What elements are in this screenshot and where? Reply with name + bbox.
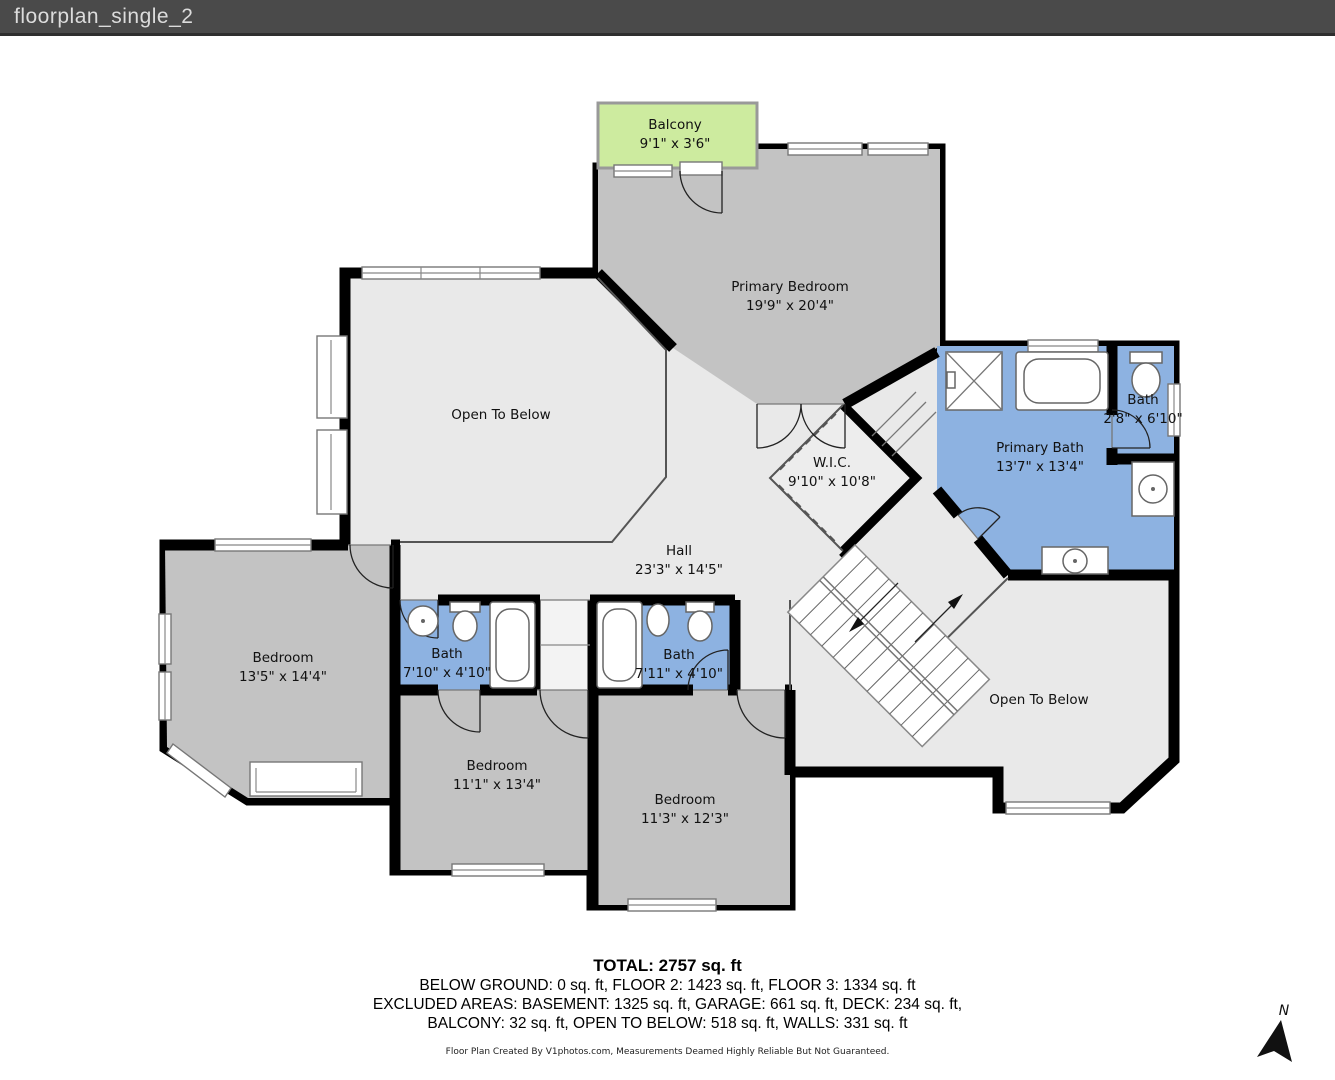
room-name: Bath bbox=[1103, 391, 1182, 410]
summary-total: TOTAL: 2757 sq. ft bbox=[0, 955, 1335, 976]
room-dims: 7'10" x 4'10" bbox=[403, 664, 491, 683]
floor-plan bbox=[0, 0, 1335, 1080]
room-dims: 11'3" x 12'3" bbox=[641, 810, 729, 829]
room-dims: 19'9" x 20'4" bbox=[731, 297, 849, 316]
compass-north-label: N bbox=[1279, 1003, 1289, 1019]
room-name: Bath bbox=[403, 645, 491, 664]
room-label-bedroom-left: Bedroom 13'5" x 14'4" bbox=[239, 649, 327, 687]
room-dims: 9'10" x 10'8" bbox=[788, 473, 876, 492]
room-label-bath-upper-right: Bath 2'8" x 6'10" bbox=[1103, 391, 1182, 429]
room-name: Bedroom bbox=[453, 757, 541, 776]
sink-bath-right bbox=[647, 604, 669, 636]
room-label-primary-bedroom: Primary Bedroom 19'9" x 20'4" bbox=[731, 278, 849, 316]
room-dims: 7'11" x 4'10" bbox=[635, 665, 723, 684]
sink-bath-left bbox=[408, 606, 438, 636]
room-name: Open To Below bbox=[451, 406, 550, 425]
room-name: Hall bbox=[635, 542, 723, 561]
room-label-open-to-below-right: Open To Below bbox=[989, 691, 1088, 710]
room-dims: 13'7" x 13'4" bbox=[996, 458, 1084, 477]
summary-floors: BELOW GROUND: 0 sq. ft, FLOOR 2: 1423 sq… bbox=[0, 976, 1335, 995]
room-label-bath-left: Bath 7'10" x 4'10" bbox=[403, 645, 491, 683]
vanity-sink-bottom bbox=[1042, 547, 1108, 574]
bathtub-primary bbox=[1016, 352, 1108, 410]
room-label-bedroom-middle: Bedroom 11'1" x 13'4" bbox=[453, 757, 541, 795]
room-label-balcony: Balcony 9'1" x 3'6" bbox=[640, 116, 711, 154]
room-label-bedroom-bottom: Bedroom 11'3" x 12'3" bbox=[641, 791, 729, 829]
room-name: Bedroom bbox=[239, 649, 327, 668]
room-name: W.I.C. bbox=[788, 454, 876, 473]
room-name: Primary Bedroom bbox=[731, 278, 849, 297]
room-dims: 9'1" x 3'6" bbox=[640, 135, 711, 154]
room-name: Primary Bath bbox=[996, 439, 1084, 458]
room-label-primary-bath: Primary Bath 13'7" x 13'4" bbox=[996, 439, 1084, 477]
room-label-open-to-below-left: Open To Below bbox=[451, 406, 550, 425]
room-dims: 23'3" x 14'5" bbox=[635, 561, 723, 580]
room-name: Bath bbox=[635, 646, 723, 665]
shower bbox=[946, 352, 1002, 410]
room-label-hall: Hall 23'3" x 14'5" bbox=[635, 542, 723, 580]
room-name: Bedroom bbox=[641, 791, 729, 810]
room-label-wic: W.I.C. 9'10" x 10'8" bbox=[788, 454, 876, 492]
area-summary: TOTAL: 2757 sq. ft BELOW GROUND: 0 sq. f… bbox=[0, 955, 1335, 1033]
room-dims: 11'1" x 13'4" bbox=[453, 776, 541, 795]
room-name: Open To Below bbox=[989, 691, 1088, 710]
bathtub-left bbox=[490, 602, 535, 688]
summary-excluded-1: EXCLUDED AREAS: BASEMENT: 1325 sq. ft, G… bbox=[0, 995, 1335, 1014]
room-name: Balcony bbox=[640, 116, 711, 135]
disclaimer-text: Floor Plan Created By V1photos.com, Meas… bbox=[0, 1047, 1335, 1057]
summary-excluded-2: BALCONY: 32 sq. ft, OPEN TO BELOW: 518 s… bbox=[0, 1014, 1335, 1033]
toilet-bath-right bbox=[686, 602, 714, 641]
room-dims: 2'8" x 6'10" bbox=[1103, 410, 1182, 429]
vanity-sink-right bbox=[1132, 462, 1174, 516]
room-label-bath-right: Bath 7'11" x 4'10" bbox=[635, 646, 723, 684]
room-dims: 13'5" x 14'4" bbox=[239, 668, 327, 687]
